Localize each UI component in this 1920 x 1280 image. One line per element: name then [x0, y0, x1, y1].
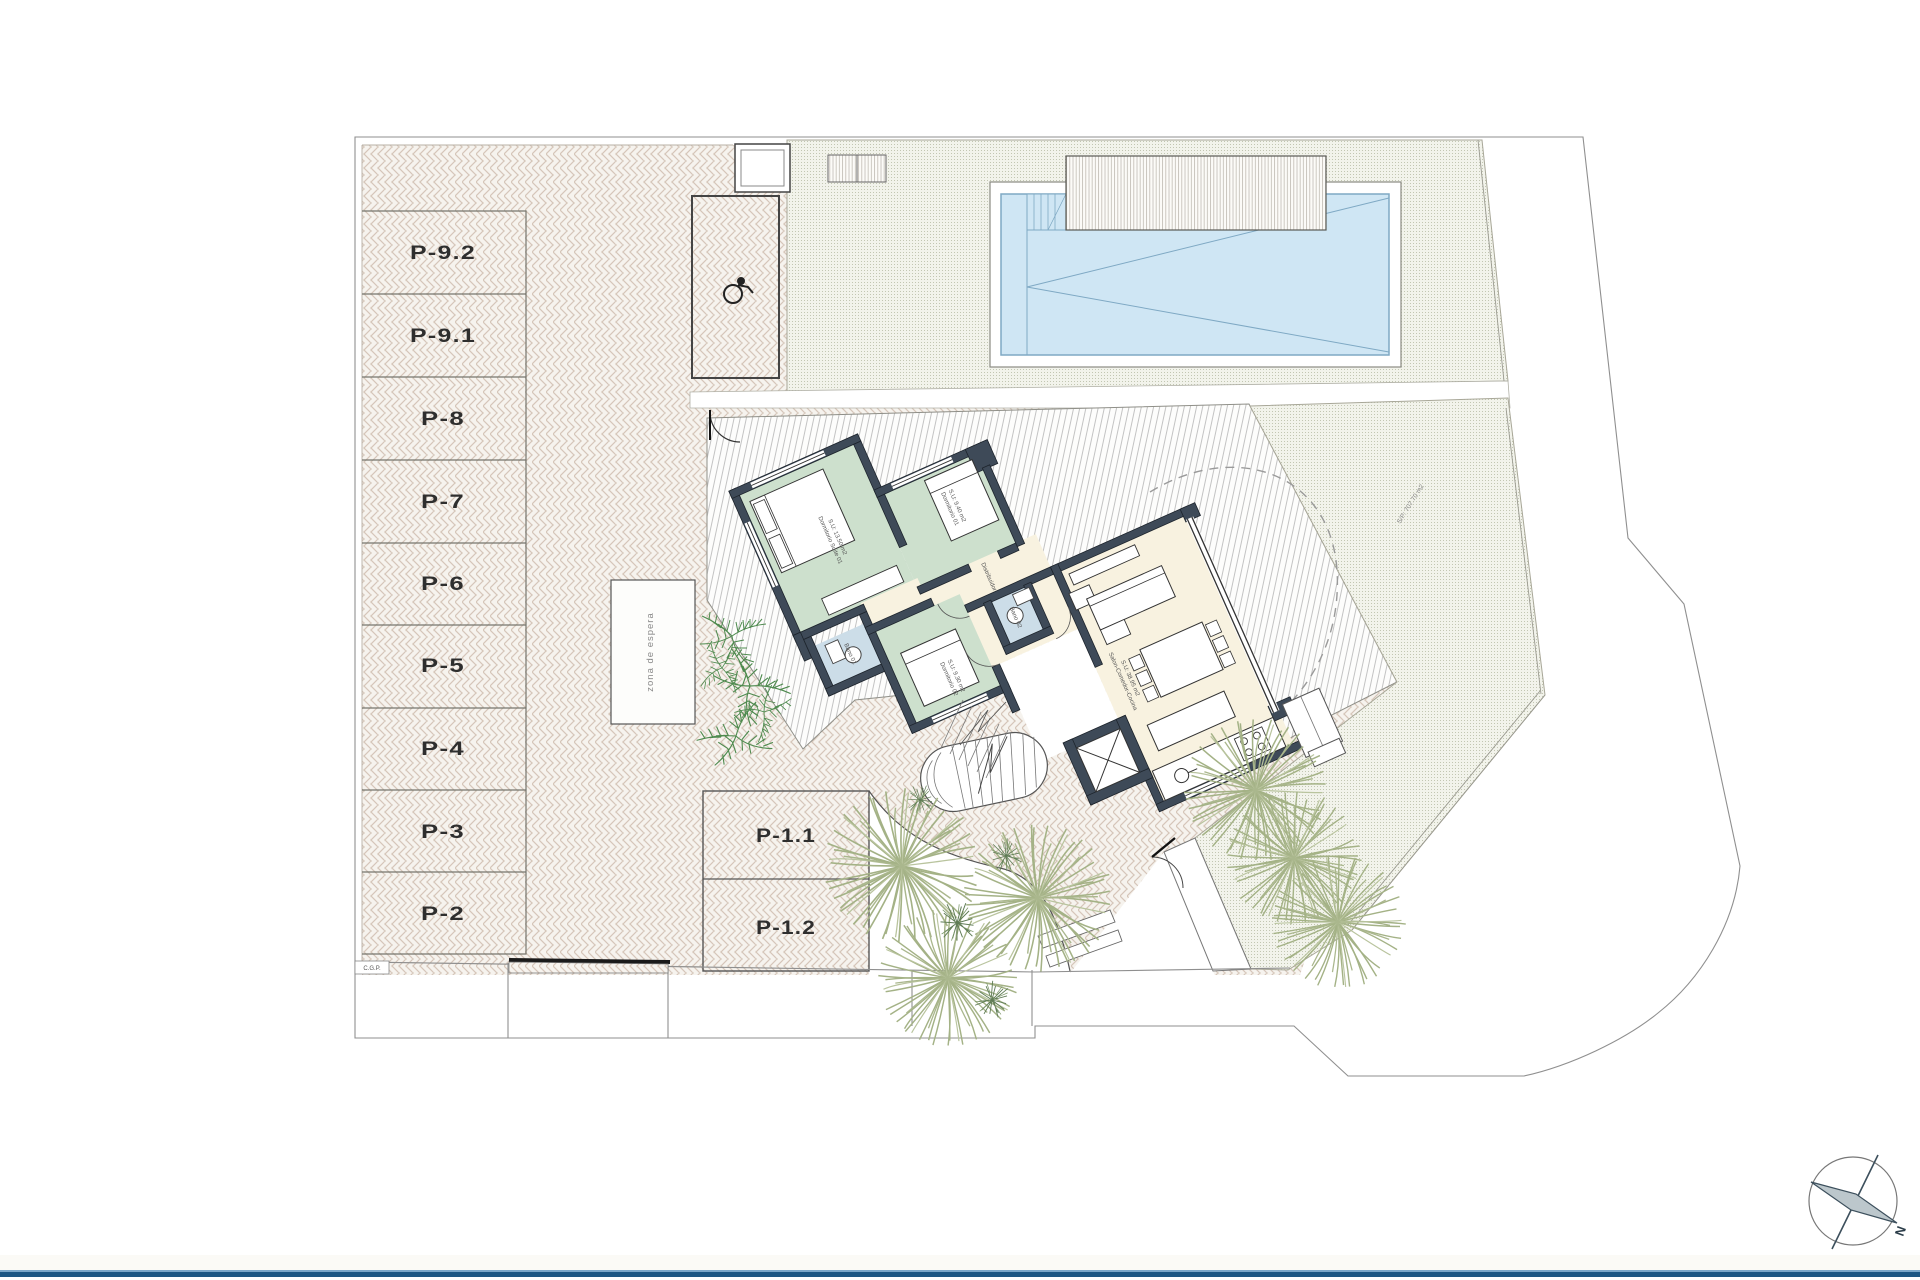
svg-text:P-4: P-4 [421, 739, 465, 760]
svg-text:P-9.1: P-9.1 [410, 326, 476, 347]
svg-text:P-3: P-3 [421, 822, 465, 843]
svg-text:P-8: P-8 [421, 409, 465, 430]
svg-text:C.G.P.: C.G.P. [363, 966, 381, 972]
svg-text:P-5: P-5 [421, 656, 465, 677]
svg-text:zona de espera: zona de espera [645, 612, 656, 692]
svg-text:P-2: P-2 [421, 904, 465, 925]
svg-text:P-1.2: P-1.2 [756, 918, 816, 939]
svg-text:P-1.1: P-1.1 [756, 826, 816, 847]
svg-text:P-9.2: P-9.2 [410, 243, 476, 264]
svg-text:P-6: P-6 [421, 574, 465, 595]
svg-text:P-7: P-7 [421, 492, 465, 513]
